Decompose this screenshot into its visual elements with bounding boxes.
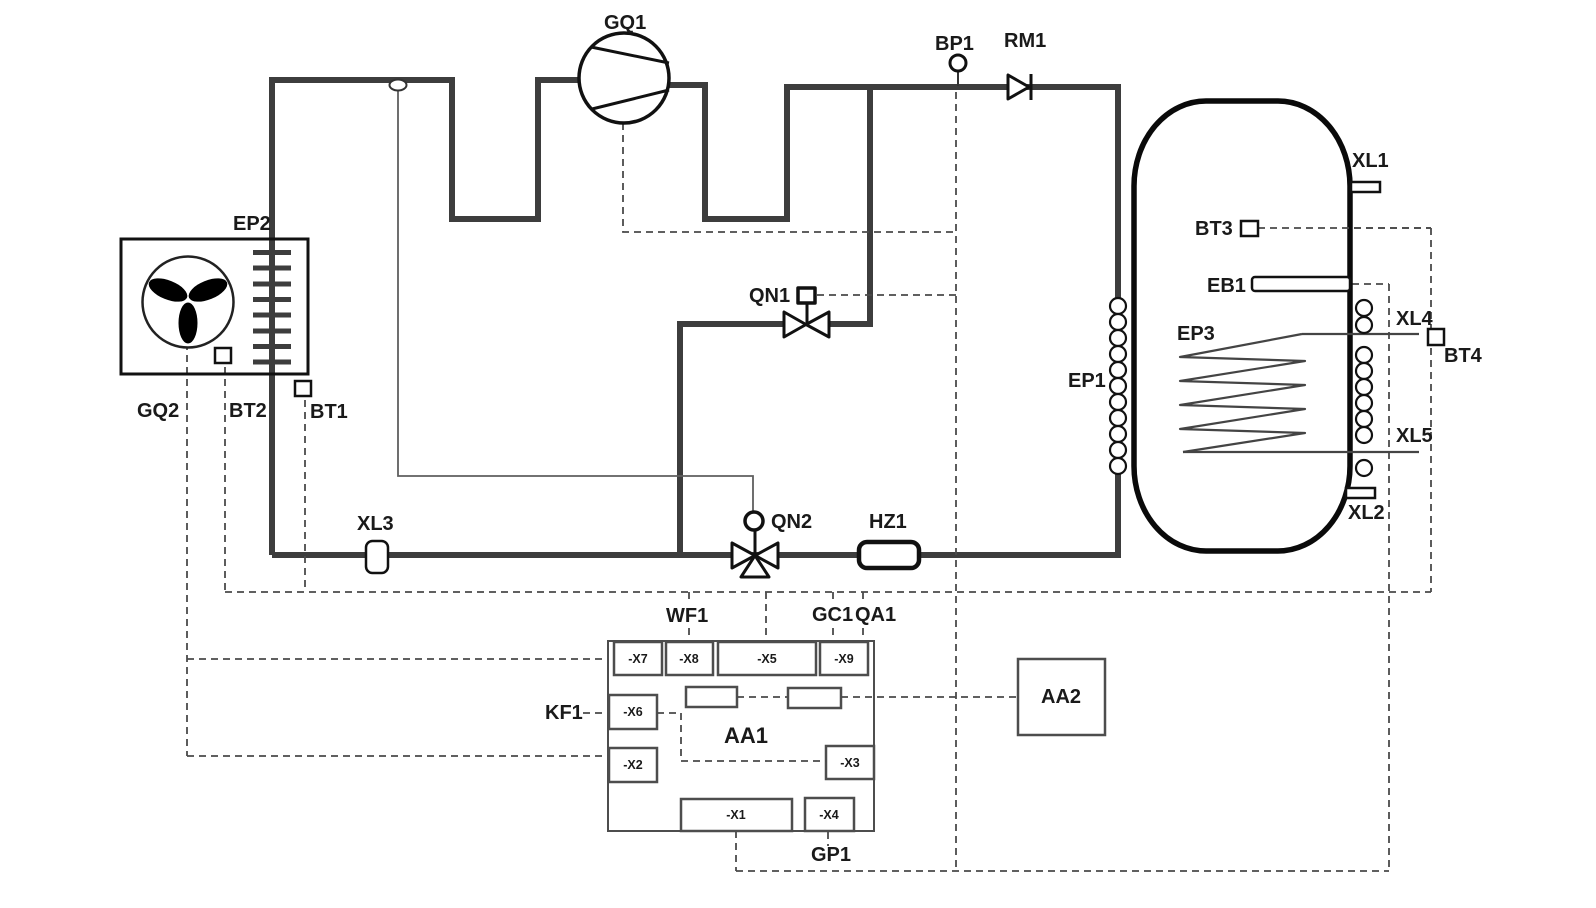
svg-text:QN2: QN2 <box>771 511 812 533</box>
svg-text:KF1: KF1 <box>545 702 583 724</box>
svg-text:GC1: GC1 <box>812 604 853 626</box>
svg-text:XL3: XL3 <box>357 513 394 535</box>
svg-text:BT2: BT2 <box>229 400 267 422</box>
svg-text:GQ2: GQ2 <box>137 400 179 422</box>
svg-text:-X9: -X9 <box>834 652 854 666</box>
svg-text:GP1: GP1 <box>811 844 851 866</box>
svg-text:-X6: -X6 <box>623 705 643 719</box>
svg-text:AA2: AA2 <box>1041 686 1081 708</box>
svg-text:-X5: -X5 <box>757 652 777 666</box>
svg-text:-X1: -X1 <box>726 808 746 822</box>
svg-text:EB1: EB1 <box>1207 275 1246 297</box>
svg-text:-X3: -X3 <box>840 756 860 770</box>
svg-text:-X7: -X7 <box>628 652 648 666</box>
svg-text:-X8: -X8 <box>679 652 699 666</box>
svg-text:BT4: BT4 <box>1444 345 1483 367</box>
svg-text:BT1: BT1 <box>310 401 348 423</box>
svg-text:HZ1: HZ1 <box>869 511 907 533</box>
svg-text:EP1: EP1 <box>1068 370 1106 392</box>
svg-text:EP2: EP2 <box>233 213 271 235</box>
svg-text:BT3: BT3 <box>1195 218 1233 240</box>
svg-text:-X2: -X2 <box>623 758 643 772</box>
svg-text:XL1: XL1 <box>1352 150 1389 172</box>
svg-text:RM1: RM1 <box>1004 30 1046 52</box>
svg-text:EP3: EP3 <box>1177 323 1215 345</box>
svg-text:WF1: WF1 <box>666 605 708 627</box>
svg-text:QN1: QN1 <box>749 285 790 307</box>
svg-text:-X4: -X4 <box>819 808 839 822</box>
svg-text:XL4: XL4 <box>1396 308 1434 330</box>
svg-text:BP1: BP1 <box>935 33 974 55</box>
svg-text:AA1: AA1 <box>724 723 768 748</box>
svg-text:XL5: XL5 <box>1396 425 1433 447</box>
svg-text:XL2: XL2 <box>1348 502 1385 524</box>
svg-text:QA1: QA1 <box>855 604 896 626</box>
svg-text:GQ1: GQ1 <box>604 12 646 34</box>
